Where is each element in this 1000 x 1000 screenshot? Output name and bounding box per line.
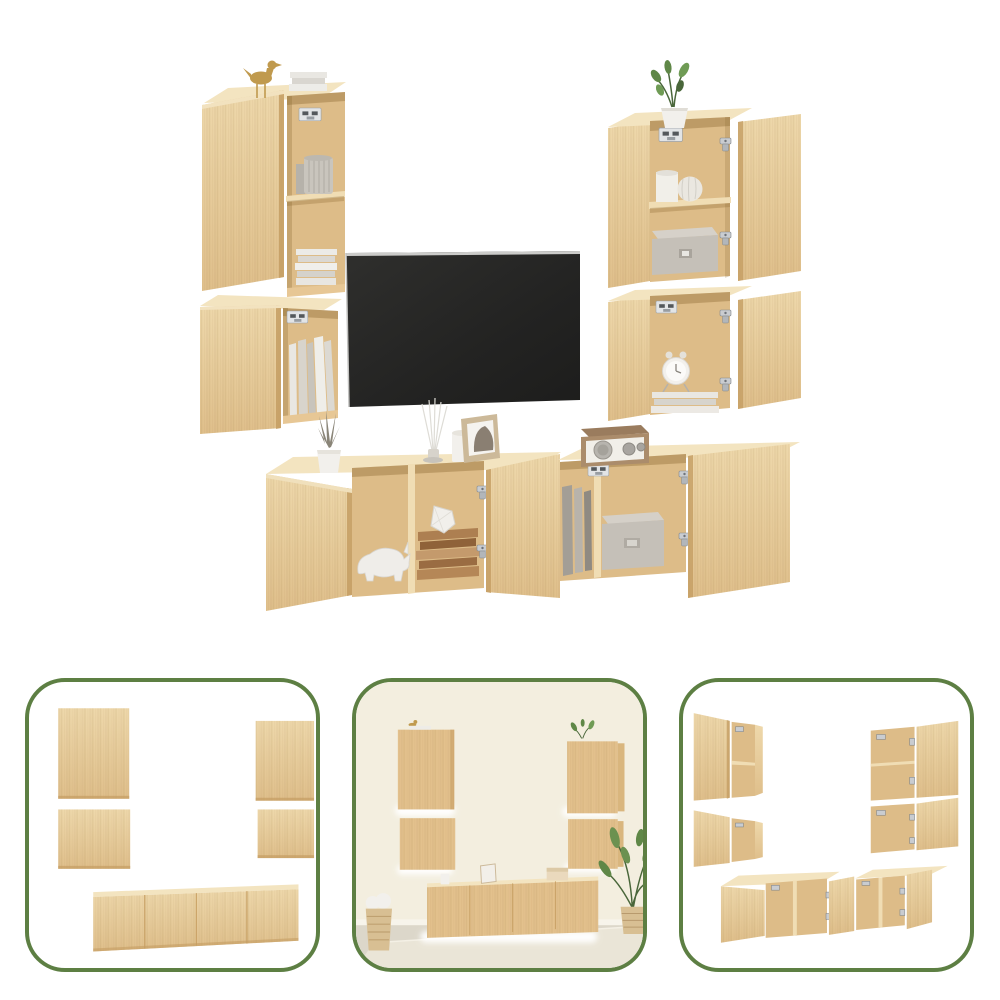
gray-storage-box — [602, 512, 664, 570]
books-on-top — [289, 72, 327, 91]
thumbnail-open-doors-image — [683, 682, 970, 968]
incense-sticks — [422, 398, 447, 463]
wall-mount-bracket — [287, 311, 308, 323]
picture-frame — [461, 414, 500, 463]
thumbnail-room-scene-view[interactable] — [352, 678, 647, 972]
wall-mount-bracket — [656, 301, 677, 313]
gray-books — [562, 485, 592, 576]
wall-mount-bracket — [659, 128, 682, 142]
thumbnail-closed-front-view-image — [29, 682, 316, 968]
main-product-image — [0, 0, 1000, 670]
thumbnail-closed-front-view[interactable] — [25, 678, 320, 972]
tv-stand-right — [558, 425, 800, 598]
gray-storage-box — [652, 227, 718, 275]
thumbnail-room-scene-image — [356, 682, 643, 968]
leaning-books — [289, 336, 335, 419]
open-set — [694, 713, 959, 943]
book-stack — [295, 249, 337, 285]
closed-set — [58, 708, 314, 951]
wall-mount-bracket — [299, 108, 321, 121]
retro-radio — [581, 425, 649, 467]
basket — [366, 893, 392, 950]
brown-book-stack — [416, 528, 480, 580]
cabinet-small-right — [608, 286, 801, 421]
thumbnail-row — [0, 678, 1000, 978]
tv — [346, 251, 580, 407]
tv-stand-left — [266, 452, 561, 611]
cabinet-tall-right — [608, 60, 801, 288]
product-gallery — [0, 0, 1000, 1000]
cabinet-small-left — [200, 295, 342, 434]
cabinet-tall-left — [202, 61, 346, 298]
flat-books — [651, 392, 719, 413]
thumbnail-open-doors-view[interactable] — [679, 678, 974, 972]
